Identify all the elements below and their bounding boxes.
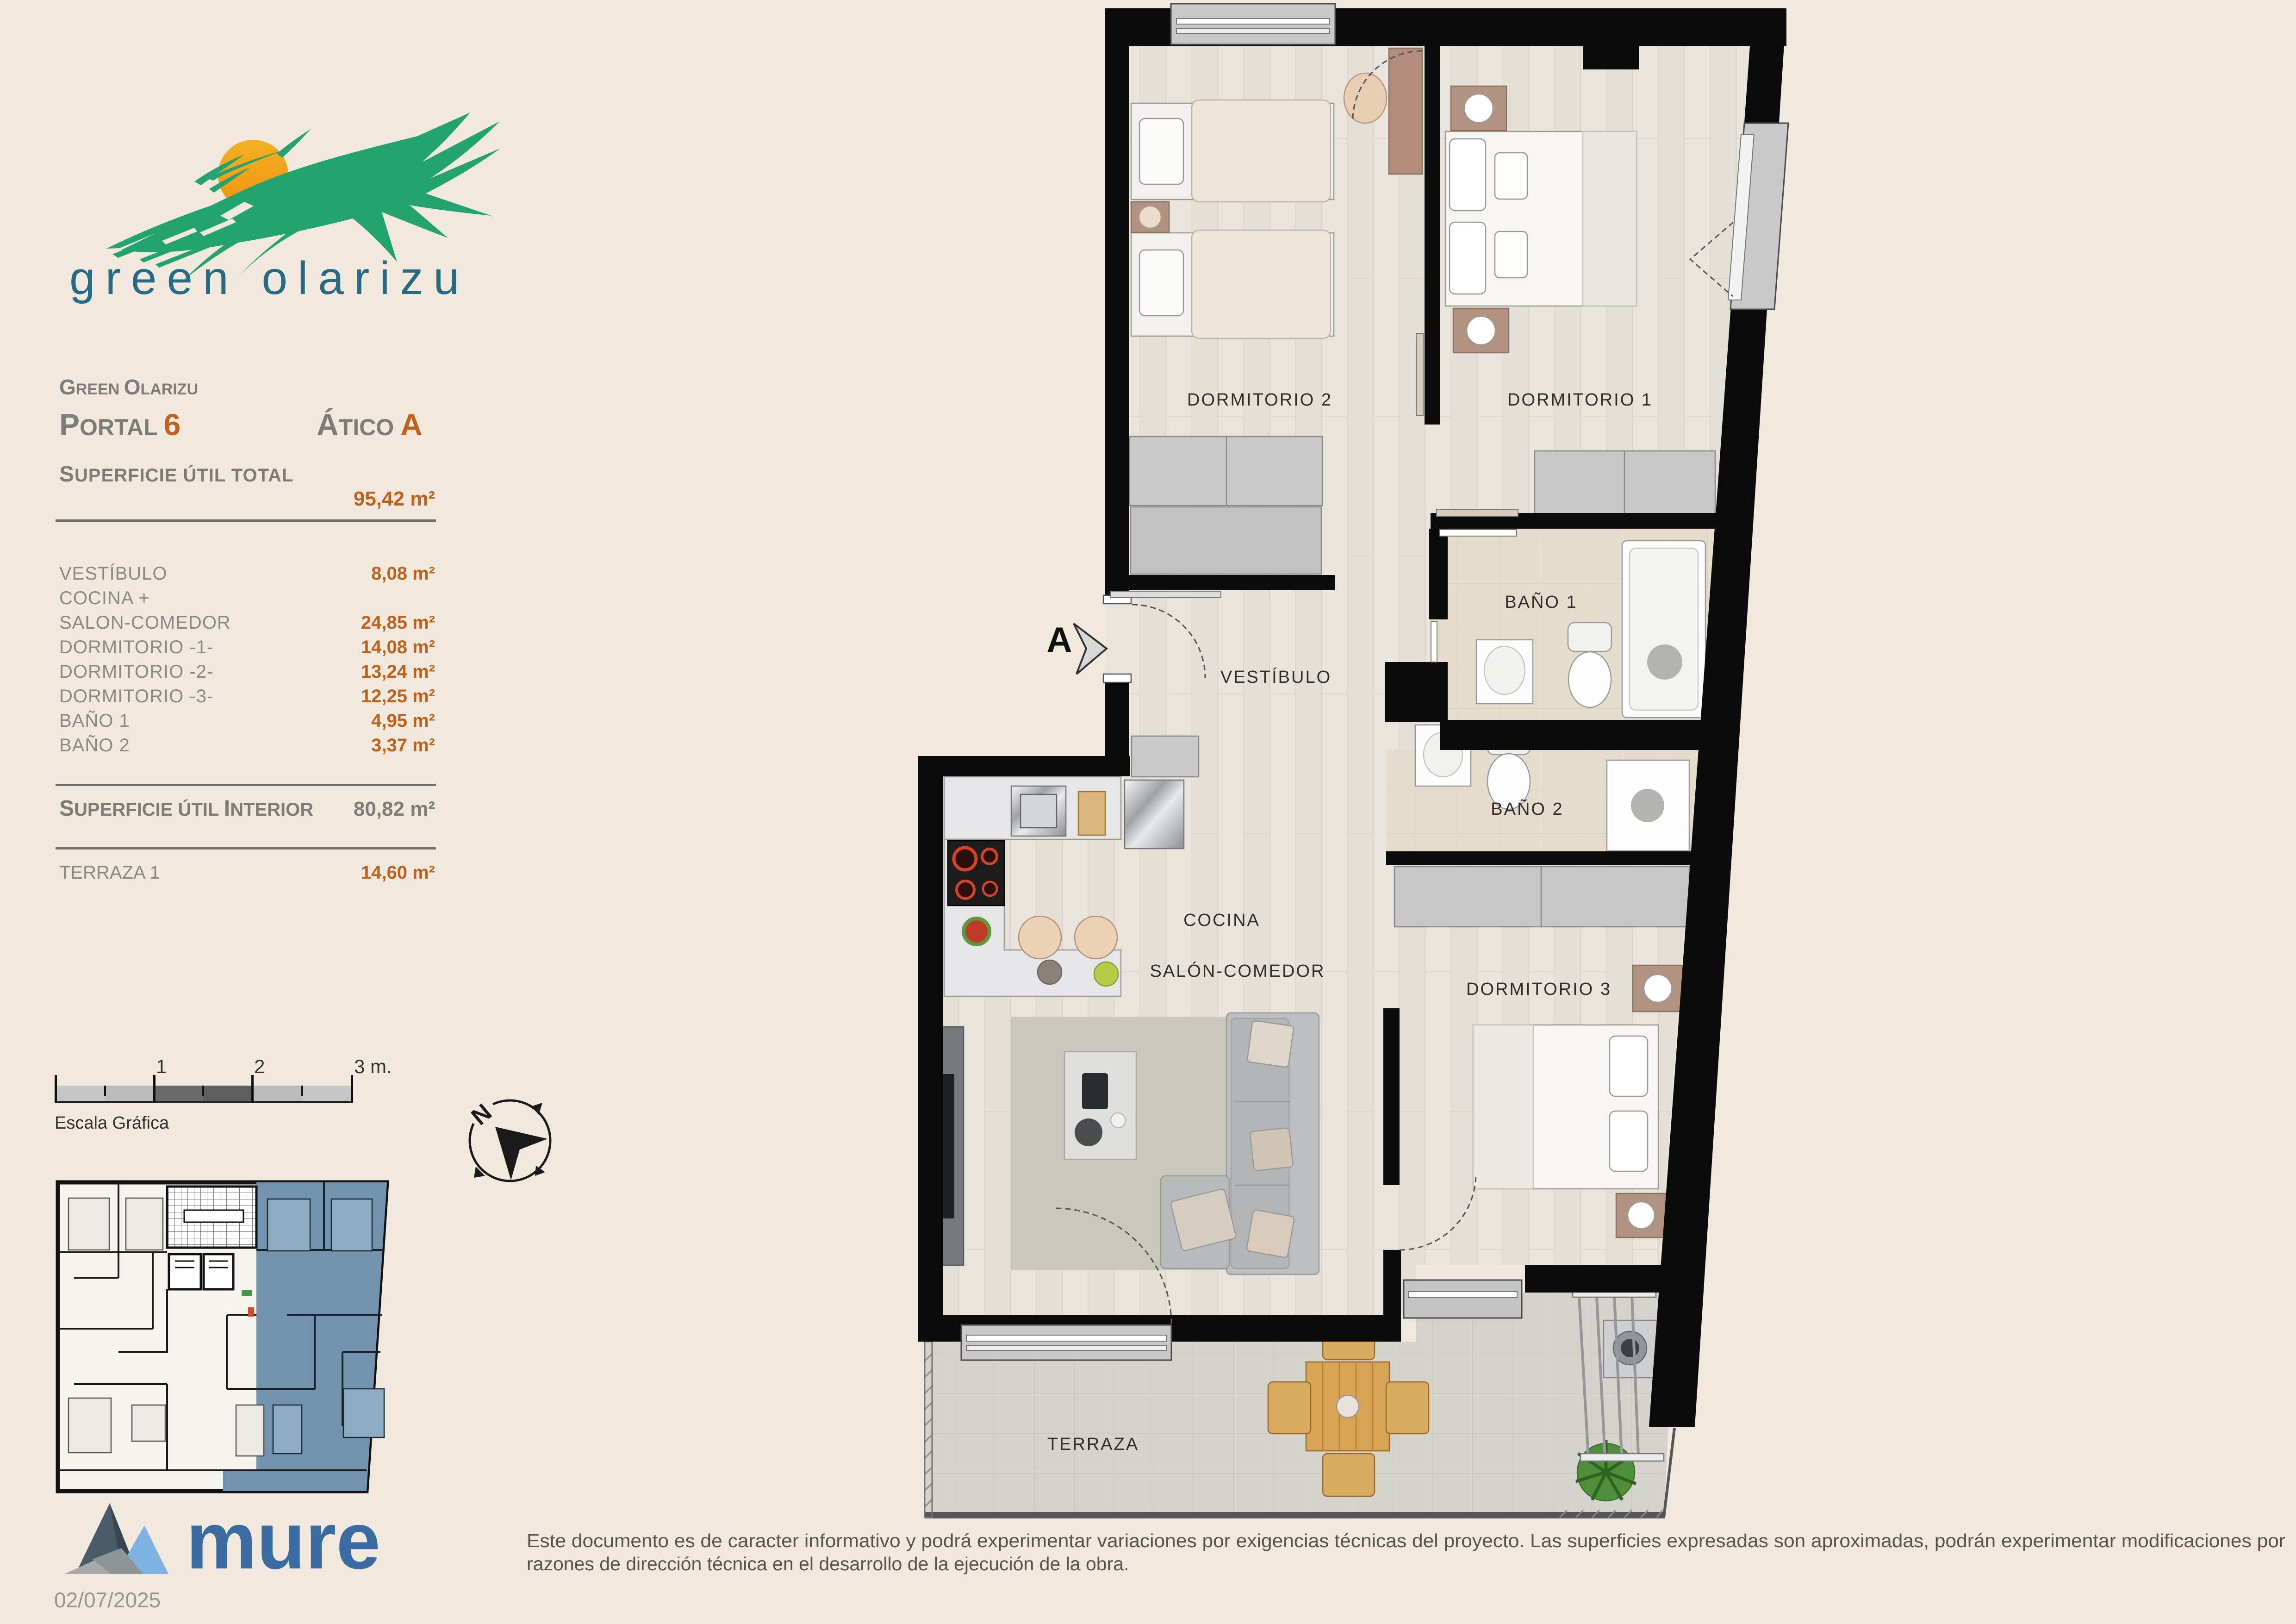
svg-text:COCINA: COCINA — [1183, 911, 1260, 930]
svg-text:DORMITORIO -2-: DORMITORIO -2- — [59, 662, 213, 682]
svg-text:14,60 m²: 14,60 m² — [361, 862, 435, 883]
svg-text:ÁTICO A: ÁTICO A — [317, 407, 423, 442]
svg-text:GREEN OLARIZU: GREEN OLARIZU — [59, 375, 198, 399]
svg-text:02/07/2025: 02/07/2025 — [54, 1588, 161, 1612]
svg-text:DORMITORIO 2: DORMITORIO 2 — [1187, 390, 1332, 410]
svg-text:BAÑO 1: BAÑO 1 — [59, 710, 130, 731]
svg-text:COCINA +: COCINA + — [59, 588, 150, 608]
svg-text:SUPERFICIE ÚTIL INTERIOR: SUPERFICIE ÚTIL INTERIOR — [59, 796, 313, 821]
svg-text:TERRAZA 1: TERRAZA 1 — [59, 862, 160, 883]
svg-text:24,85 m²: 24,85 m² — [361, 612, 435, 633]
svg-text:TERRAZA: TERRAZA — [1047, 1435, 1139, 1454]
svg-text:80,82 m²: 80,82 m² — [354, 798, 435, 820]
svg-text:SALON-COMEDOR: SALON-COMEDOR — [59, 612, 231, 633]
svg-text:SALÓN-COMEDOR: SALÓN-COMEDOR — [1150, 961, 1325, 981]
svg-text:8,08 m²: 8,08 m² — [371, 563, 435, 584]
svg-text:SUPERFICIE ÚTIL TOTAL: SUPERFICIE ÚTIL TOTAL — [59, 462, 293, 487]
svg-text:BAÑO 2: BAÑO 2 — [59, 735, 130, 756]
svg-text:4,95 m²: 4,95 m² — [371, 711, 435, 731]
svg-text:razones de dirección técnica e: razones de dirección técnica en el desar… — [527, 1553, 1129, 1574]
svg-text:BAÑO 2: BAÑO 2 — [1491, 799, 1563, 819]
svg-text:DORMITORIO -1-: DORMITORIO -1- — [59, 637, 213, 657]
svg-text:1: 1 — [156, 1056, 167, 1077]
svg-text:3,37 m²: 3,37 m² — [371, 735, 435, 756]
svg-text:Este documento es de caracter: Este documento es de caracter informativ… — [527, 1530, 2285, 1551]
svg-text:DORMITORIO 3: DORMITORIO 3 — [1466, 980, 1612, 999]
svg-text:BAÑO 1: BAÑO 1 — [1505, 592, 1577, 612]
svg-text:DORMITORIO -3-: DORMITORIO -3- — [59, 686, 213, 706]
svg-text:A: A — [1047, 620, 1072, 660]
svg-text:VESTÍBULO: VESTÍBULO — [1220, 667, 1332, 687]
svg-text:14,08 m²: 14,08 m² — [361, 637, 435, 657]
svg-text:95,42 m²: 95,42 m² — [354, 487, 435, 510]
svg-text:12,25 m²: 12,25 m² — [361, 686, 435, 706]
svg-text:2: 2 — [254, 1056, 265, 1077]
svg-text:VESTÍBULO: VESTÍBULO — [59, 563, 168, 584]
svg-text:Escala Gráfica: Escala Gráfica — [55, 1113, 169, 1133]
svg-text:mure: mure — [186, 1496, 380, 1586]
svg-text:3 m.: 3 m. — [354, 1056, 392, 1077]
svg-text:DORMITORIO 1: DORMITORIO 1 — [1507, 390, 1653, 410]
svg-text:13,24 m²: 13,24 m² — [361, 662, 435, 682]
svg-text:green olarizu: green olarizu — [69, 252, 469, 304]
svg-text:PORTAL 6: PORTAL 6 — [59, 407, 180, 442]
